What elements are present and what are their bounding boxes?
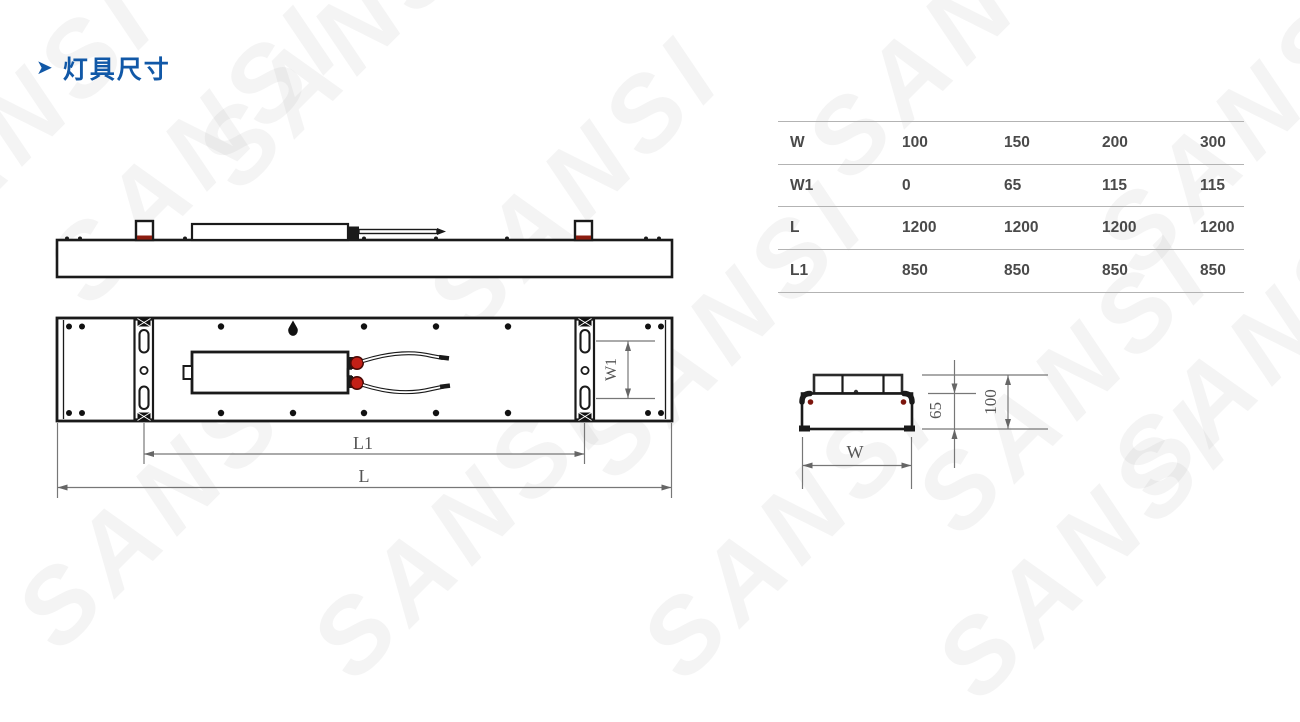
w1-label: W1	[603, 358, 620, 381]
table-cell: 150	[992, 134, 1090, 152]
table-cell: 850	[890, 262, 992, 280]
table-cell: 0	[890, 177, 992, 195]
bracket-gasket	[137, 236, 152, 240]
table-cell: 1200	[1090, 219, 1188, 237]
table-cell: 115	[1090, 177, 1188, 195]
table-cell: 850	[1090, 262, 1188, 280]
bracket-strip	[576, 319, 595, 421]
top-view: W1	[57, 318, 672, 421]
row-label: W1	[778, 177, 890, 195]
side-view	[57, 221, 672, 277]
row-label: L1	[778, 262, 890, 280]
table-cell: 65	[992, 177, 1090, 195]
row-label: L	[778, 219, 890, 237]
spec-sheet-page: { "title": { "arrow": "➤", "text": "灯具尺寸…	[0, 0, 1300, 577]
table-cell: 850	[1188, 262, 1244, 280]
table-row: W 100 150 200 300	[778, 121, 1244, 164]
table-cell: 100	[890, 134, 992, 152]
table-cell: 115	[1188, 177, 1244, 195]
table-cell: 850	[992, 262, 1090, 280]
height-100-label: 100	[981, 389, 1000, 415]
height-65-label: 65	[926, 402, 945, 419]
wire-connector	[351, 377, 363, 389]
table-cell: 300	[1188, 134, 1244, 152]
section-title: ➤ 灯具尺寸	[36, 50, 171, 86]
bracket-gasket	[576, 236, 591, 240]
l1-label: L1	[353, 433, 373, 453]
table-cell: 1200	[890, 219, 992, 237]
table-row: L1 850 850 850 850	[778, 249, 1244, 293]
row-label: W	[778, 134, 890, 152]
bracket-strip	[135, 319, 154, 421]
cable-connector	[348, 227, 359, 241]
arrow-icon: ➤	[36, 58, 53, 78]
table-cell: 1200	[992, 219, 1090, 237]
table-cell: 200	[1090, 134, 1188, 152]
driver-box	[192, 224, 348, 240]
table-cell: 1200	[1188, 219, 1244, 237]
end-screw	[901, 399, 907, 405]
dimension-table: W 100 150 200 300 W1 0 65 115 115 L 1200…	[778, 121, 1244, 293]
table-row: L 1200 1200 1200 1200	[778, 206, 1244, 249]
w-label: W	[847, 442, 864, 462]
page-title: 灯具尺寸	[63, 50, 171, 86]
cable-tip	[437, 228, 446, 235]
end-screw	[808, 399, 814, 405]
table-row: W1 0 65 115 115	[778, 164, 1244, 207]
wire-connector	[351, 357, 363, 369]
power-cable	[359, 230, 437, 234]
end-view: 65 100 W	[799, 360, 1048, 489]
l-label: L	[359, 466, 370, 486]
